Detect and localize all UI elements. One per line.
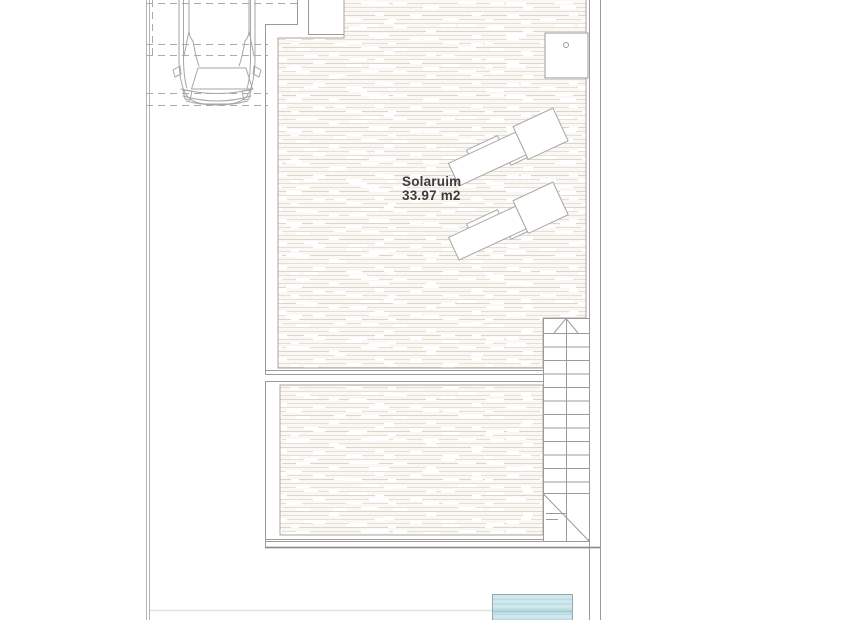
parking-dashed-lines xyxy=(146,0,297,106)
plan-drawing xyxy=(0,0,850,620)
shower-tray-icon xyxy=(545,33,588,78)
room-name: Solaruim xyxy=(402,175,461,189)
pool xyxy=(493,595,573,620)
staircase xyxy=(543,318,589,541)
room-area: 33.97 m2 xyxy=(402,189,461,203)
room-label-solarium: Solaruim 33.97 m2 xyxy=(402,175,461,203)
car-icon xyxy=(173,0,261,105)
floor-plan: Solaruim 33.97 m2 xyxy=(0,0,850,620)
